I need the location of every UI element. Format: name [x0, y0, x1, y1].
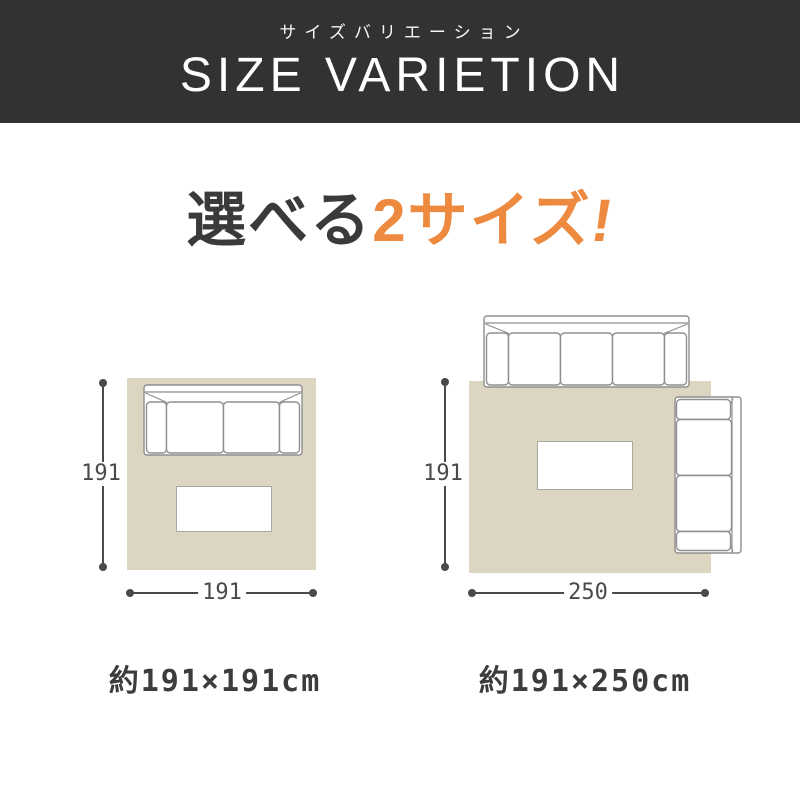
dimension-dot	[309, 589, 317, 597]
three-seat-sofa-top-icon	[483, 315, 690, 388]
dimension-dot	[441, 378, 449, 386]
dimension-dot	[441, 563, 449, 571]
width-dimension-label: 191	[198, 581, 246, 605]
size-caption-191x191: 約191×191cm	[109, 656, 322, 700]
size-variation-banner: サイズバリエーション SIZE VARIETION 選べる2サイズ! 191 1…	[0, 0, 800, 800]
height-dimension-label: 191	[419, 462, 467, 486]
two-seat-sofa-side-icon	[674, 396, 742, 554]
dimension-dot	[99, 379, 107, 387]
height-dimension-label: 191	[77, 462, 125, 486]
dimension-dot	[468, 589, 476, 597]
dimension-dot	[126, 589, 134, 597]
low-table-icon	[176, 486, 272, 532]
low-table-icon	[537, 441, 633, 490]
two-seat-sofa-top-icon	[143, 384, 303, 456]
dimension-dot	[99, 563, 107, 571]
size-caption-191x250: 約191×250cm	[479, 656, 692, 700]
width-dimension-label: 250	[564, 581, 612, 605]
dimension-dot	[701, 589, 709, 597]
